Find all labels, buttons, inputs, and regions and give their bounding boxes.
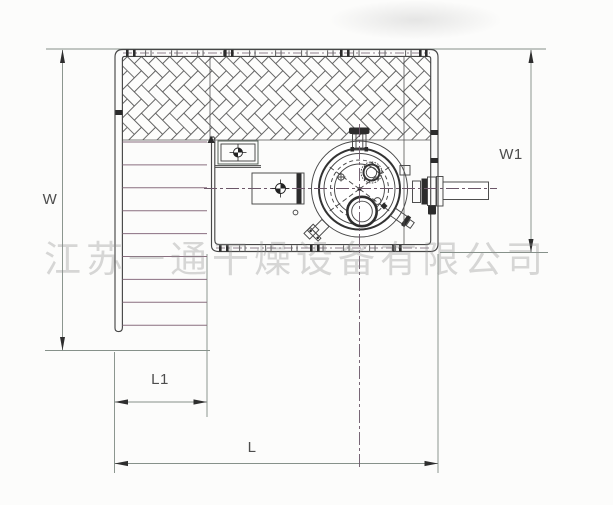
output-shaft-assembly	[413, 177, 489, 215]
drawing-canvas: W W1 L1 L 江苏一通干燥设备有限公司	[0, 0, 613, 505]
rail-fitting	[428, 206, 436, 215]
manhole	[347, 197, 376, 226]
vessel-head	[293, 128, 416, 242]
shaft	[443, 182, 489, 200]
watermark-text: 江苏一通干燥设备有限公司	[44, 229, 548, 283]
platform-hatch	[122, 56, 430, 140]
dimension-label-w: W	[38, 192, 62, 208]
marker-dot	[293, 210, 298, 215]
dimension-label-l: L	[240, 440, 264, 456]
dimension-label-w1: W1	[493, 147, 529, 163]
dimension-label-l1: L1	[143, 372, 177, 388]
position-markers	[230, 144, 290, 198]
